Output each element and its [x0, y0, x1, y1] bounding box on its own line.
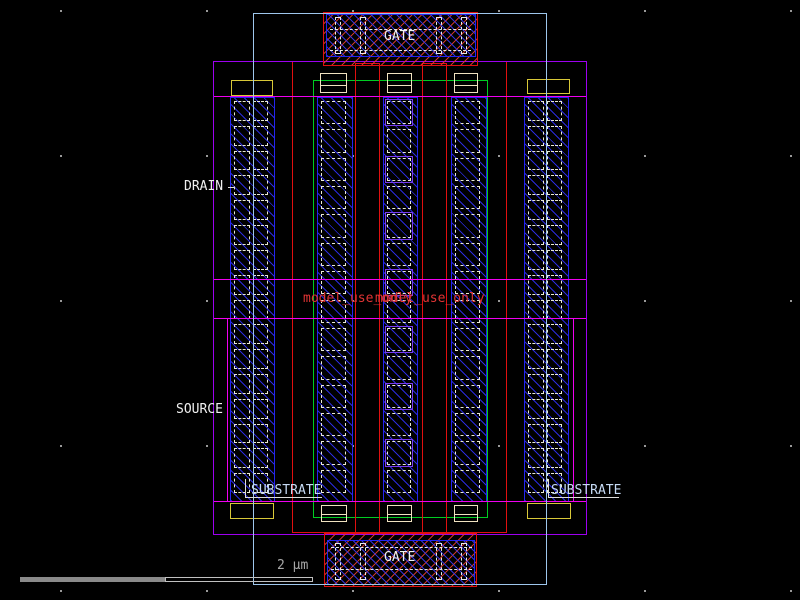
grid-dot — [790, 300, 792, 302]
grid-dot — [60, 10, 62, 12]
label-substrate-left: SUBSTRATE — [251, 484, 321, 497]
grid-dot — [644, 590, 646, 592]
label-substrate-right: SUBSTRATE — [551, 484, 621, 497]
label-source: SOURCE — [176, 403, 223, 416]
substrate-left-leader-v — [245, 479, 246, 497]
label-model-text-2: model_use_only — [375, 292, 485, 305]
grid-dot — [206, 155, 208, 157]
drain-leader — [228, 187, 234, 188]
grid-dot — [206, 300, 208, 302]
label-scale: 2 μm — [277, 559, 308, 572]
grid-dot — [206, 10, 208, 12]
label-drain: DRAIN — [184, 180, 223, 193]
grid-dot — [60, 445, 62, 447]
grid-dot — [644, 155, 646, 157]
scalebar-fill — [20, 577, 165, 582]
grid-dot — [206, 590, 208, 592]
grid-dot — [790, 10, 792, 12]
grid-dot — [60, 590, 62, 592]
grid-dot — [206, 445, 208, 447]
grid-dot — [644, 445, 646, 447]
grid-dot — [498, 10, 500, 12]
grid-dot — [790, 445, 792, 447]
grid-dot — [644, 10, 646, 12]
label-gate-top: GATE — [384, 30, 415, 43]
layout-canvas[interactable]: GATEGATEDRAINSOURCESUBSTRATESUBSTRATE2 μ… — [0, 0, 800, 600]
grid-dot — [60, 155, 62, 157]
grid-dot — [352, 590, 354, 592]
grid-dot — [498, 590, 500, 592]
label-gate-bottom: GATE — [384, 551, 415, 564]
substrate-right-leader-v — [548, 479, 549, 497]
grid-dot — [60, 300, 62, 302]
grid-dot — [790, 155, 792, 157]
grid-dot — [790, 590, 792, 592]
grid-dot — [644, 300, 646, 302]
scalebar-outline — [165, 577, 313, 582]
